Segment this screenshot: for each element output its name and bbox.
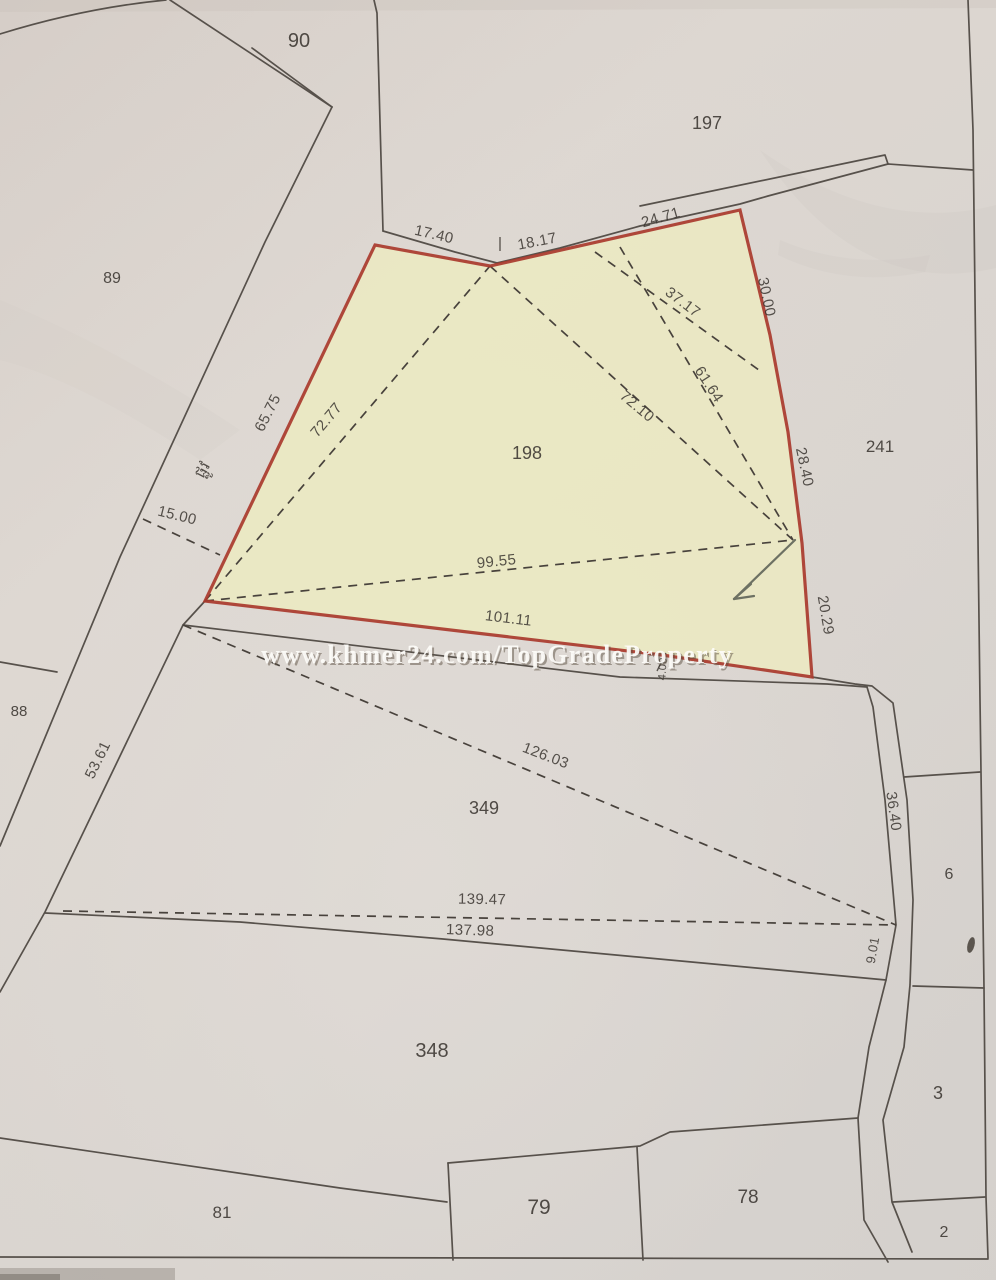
label-parcel-78: 78: [737, 1187, 758, 1208]
measurement-139-47: 139.47: [458, 891, 507, 909]
cadastral-map-svg: 90 197 89 241 198 88 349 348 81 79 78 6 …: [0, 0, 996, 1280]
watermark-text: www.khmer24.com/TopGradeProperty: [261, 640, 733, 669]
measurement-137-98: 137.98: [446, 921, 495, 940]
label-parcel-349: 349: [469, 798, 499, 818]
watermark: www.khmer24.com/TopGradeProperty www.khm…: [261, 640, 735, 671]
label-parcel-241: 241: [866, 437, 894, 456]
label-parcel-198: 198: [512, 443, 542, 463]
label-parcel-197: 197: [692, 113, 722, 133]
label-parcel-3: 3: [933, 1083, 943, 1103]
label-parcel-90: 90: [288, 30, 310, 52]
label-parcel-89: 89: [103, 270, 121, 287]
label-parcel-88: 88: [11, 703, 28, 720]
label-parcel-6: 6: [945, 866, 954, 883]
label-parcel-2: 2: [940, 1224, 949, 1241]
survey-map-page: 90 197 89 241 198 88 349 348 81 79 78 6 …: [0, 0, 996, 1280]
label-parcel-81: 81: [213, 1203, 232, 1222]
bottom-left-shadow-dark: [0, 1274, 60, 1280]
label-parcel-348: 348: [415, 1040, 448, 1062]
label-parcel-79: 79: [527, 1196, 550, 1219]
